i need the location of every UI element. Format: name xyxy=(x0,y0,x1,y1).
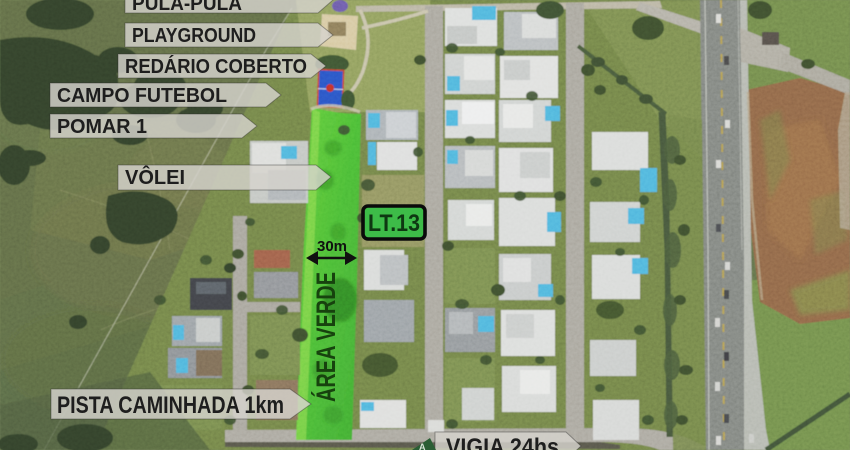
svg-text:CAMPO FUTEBOL: CAMPO FUTEBOL xyxy=(57,85,227,107)
svg-text:ÁREA VERDE: ÁREA VERDE xyxy=(310,272,341,402)
svg-text:LT.13: LT.13 xyxy=(368,210,420,237)
svg-text:PULA-PULA: PULA-PULA xyxy=(132,0,242,15)
svg-text:POMAR 1: POMAR 1 xyxy=(57,116,147,138)
svg-text:PLAYGROUND: PLAYGROUND xyxy=(132,25,256,47)
svg-text:VÔLEI: VÔLEI xyxy=(125,165,185,189)
svg-text:A: A xyxy=(419,442,426,450)
svg-text:30m: 30m xyxy=(317,238,347,255)
svg-text:VIGIA 24hs: VIGIA 24hs xyxy=(446,434,559,450)
svg-text:REDÁRIO COBERTO: REDÁRIO COBERTO xyxy=(125,55,307,78)
svg-text:PISTA CAMINHADA 1km: PISTA CAMINHADA 1km xyxy=(57,392,284,419)
